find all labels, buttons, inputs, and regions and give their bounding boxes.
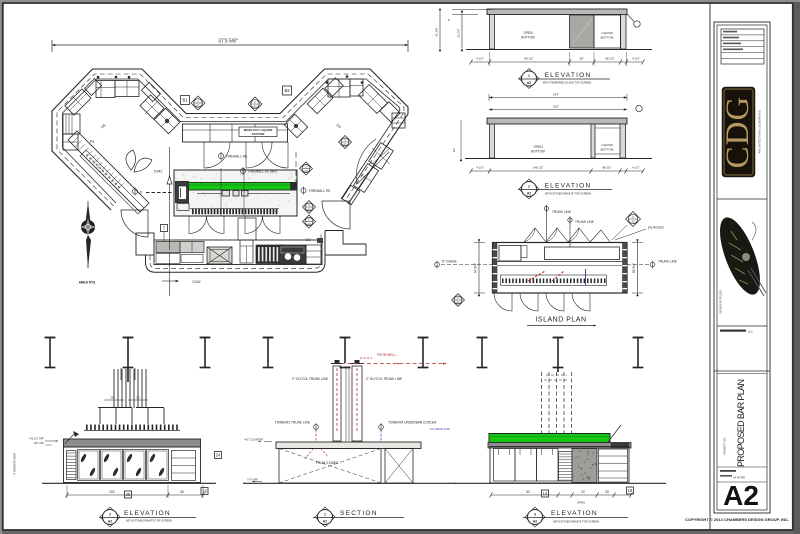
svg-text:2'042: 2'042 bbox=[154, 170, 163, 174]
svg-text:84 1/2": 84 1/2" bbox=[524, 57, 533, 61]
svg-text:PROPOSED BAR PLAN: PROPOSED BAR PLAN bbox=[736, 379, 746, 467]
svg-text:BOTTOM: BOTTOM bbox=[601, 147, 614, 151]
svg-text:TOWER#1 TRUNK LINE: TOWER#1 TRUNK LINE bbox=[275, 421, 310, 425]
svg-text:14: 14 bbox=[543, 491, 548, 496]
svg-text:FIREWALL RE.: FIREWALL RE. bbox=[226, 155, 248, 159]
svg-text:BOTTOM: BOTTOM bbox=[531, 149, 545, 153]
svg-text:3: 3 bbox=[534, 513, 536, 517]
svg-text:PS: PS bbox=[90, 140, 95, 144]
svg-text:ARCHITECTURE DESIGNERS: ARCHITECTURE DESIGNERS bbox=[758, 110, 762, 153]
svg-text:WITH STONE/GRANITE TOP SCREEN: WITH STONE/GRANITE TOP SCREEN bbox=[553, 520, 599, 524]
svg-text:A2: A2 bbox=[108, 520, 112, 524]
svg-text:4' GRANITE BAR: 4' GRANITE BAR bbox=[13, 453, 17, 475]
svg-text:36 1/2": 36 1/2" bbox=[457, 28, 461, 37]
svg-text:148 1/2": 148 1/2" bbox=[533, 166, 544, 170]
svg-text:TRUNK LINE: TRUNK LINE bbox=[552, 210, 571, 214]
svg-text:FROM WELL ...: FROM WELL ... bbox=[377, 353, 399, 357]
svg-text:88 1/2": 88 1/2" bbox=[605, 57, 614, 61]
svg-text:ELEVATION: ELEVATION bbox=[124, 510, 171, 517]
svg-text:1/2" DRAIN LINE: 1/2" DRAIN LINE bbox=[430, 427, 450, 431]
svg-text:A2: A2 bbox=[307, 222, 311, 226]
svg-text:BOTTOM: BOTTOM bbox=[521, 35, 535, 39]
svg-text:B1: B1 bbox=[182, 98, 188, 103]
svg-text:A2: A2 bbox=[343, 142, 347, 146]
svg-text:A2: A2 bbox=[631, 219, 635, 223]
svg-text:SECTION: SECTION bbox=[340, 510, 378, 517]
svg-text:FROM 3 SIDES: FROM 3 SIDES bbox=[316, 461, 339, 465]
svg-text:WITH STONE/GRANITE TOP SCREEN: WITH STONE/GRANITE TOP SCREEN bbox=[126, 519, 172, 523]
svg-text:PROJECT NO:: PROJECT NO: bbox=[723, 437, 727, 455]
svg-text:4 1/2": 4 1/2" bbox=[476, 57, 483, 61]
svg-text:A2: A2 bbox=[323, 520, 327, 524]
svg-text:STATION: STATION bbox=[252, 132, 265, 136]
svg-text:(4) HOLES: (4) HOLES bbox=[648, 226, 664, 230]
svg-text:A2: A2 bbox=[253, 104, 257, 108]
svg-text:25: 25 bbox=[126, 492, 131, 497]
svg-text:162": 162" bbox=[553, 105, 559, 109]
svg-text:24: 24 bbox=[216, 453, 221, 458]
svg-text:42": 42" bbox=[452, 148, 456, 152]
svg-text:41 3/8": 41 3/8" bbox=[435, 27, 439, 36]
svg-text:BOTTOM: BOTTOM bbox=[601, 35, 614, 39]
svg-text:2" GLYCOL TRUNK LINE: 2" GLYCOL TRUNK LINE bbox=[366, 377, 402, 381]
svg-text:A2: A2 bbox=[196, 103, 200, 107]
svg-text:2" GLYCOL TRUNK LINE: 2" GLYCOL TRUNK LINE bbox=[292, 377, 328, 381]
svg-text:TOWER#2 UNDERBAR COOLER: TOWER#2 UNDERBAR COOLER bbox=[388, 421, 437, 425]
svg-text:1: 1 bbox=[528, 74, 530, 78]
svg-text:ELEVATION: ELEVATION bbox=[551, 510, 598, 517]
svg-text:TRUNK LINE: TRUNK LINE bbox=[575, 220, 594, 224]
svg-text:LIQUOR: LIQUOR bbox=[601, 143, 613, 147]
svg-text:102: 102 bbox=[109, 490, 115, 494]
svg-text:2: 2 bbox=[109, 513, 111, 517]
svg-text:0'-0" AFF: 0'-0" AFF bbox=[247, 478, 258, 482]
svg-text:2: 2 bbox=[324, 513, 326, 517]
svg-text:4 1/2": 4 1/2" bbox=[632, 57, 639, 61]
svg-text:A2: A2 bbox=[456, 300, 460, 304]
svg-text:+36" AFF: +36" AFF bbox=[33, 441, 44, 445]
svg-text:A2: A2 bbox=[307, 207, 311, 211]
svg-text:6': 6' bbox=[140, 191, 143, 195]
svg-text:OPEN: OPEN bbox=[577, 501, 585, 505]
svg-text:1'042: 1'042 bbox=[192, 280, 201, 284]
svg-text:88 1/2": 88 1/2" bbox=[602, 166, 611, 170]
svg-text:19: 19 bbox=[202, 489, 207, 494]
svg-text:OPEN: OPEN bbox=[523, 31, 533, 35]
svg-text:A2: A2 bbox=[304, 169, 308, 173]
svg-text:WITH STONE/GRANITE TOP SCREEN: WITH STONE/GRANITE TOP SCREEN bbox=[545, 192, 591, 196]
svg-text:30: 30 bbox=[605, 490, 609, 494]
svg-text:ELEVATION: ELEVATION bbox=[545, 72, 592, 79]
svg-text:SIGNATURE STUDIO: SIGNATURE STUDIO bbox=[720, 290, 723, 314]
svg-text:ISLAND PLAN: ISLAND PLAN bbox=[535, 317, 586, 324]
svg-text:TRUNK LINE: TRUNK LINE bbox=[658, 260, 677, 264]
svg-text:A2: A2 bbox=[723, 480, 759, 511]
svg-text:32: 32 bbox=[526, 490, 530, 494]
svg-text:LIQUOR: LIQUOR bbox=[601, 31, 613, 35]
svg-text:4": 4" bbox=[448, 18, 451, 22]
svg-text:DS: DS bbox=[306, 238, 312, 242]
svg-text:1: 1 bbox=[528, 185, 530, 189]
svg-text:ELEVATION: ELEVATION bbox=[545, 183, 592, 190]
svg-text:30: 30 bbox=[180, 490, 184, 494]
svg-text:AREA NTS: AREA NTS bbox=[79, 281, 97, 285]
svg-text:+42 1/2" AFF: +42 1/2" AFF bbox=[29, 437, 45, 441]
svg-text:A2: A2 bbox=[533, 520, 537, 524]
svg-text:194": 194" bbox=[553, 93, 559, 97]
svg-text:A2: A2 bbox=[527, 192, 531, 196]
svg-text:20: 20 bbox=[136, 396, 140, 400]
svg-text:COPYRIGHT © 2014 CHAMBERS DES: COPYRIGHT © 2014 CHAMBERS DESIGN GROUP, … bbox=[685, 517, 789, 522]
svg-text:A2: A2 bbox=[527, 81, 531, 85]
svg-text:6" CHASE: 6" CHASE bbox=[442, 260, 457, 264]
svg-text:28": 28" bbox=[579, 57, 583, 61]
svg-text:FIREWALL RE (NR): FIREWALL RE (NR) bbox=[248, 170, 277, 174]
svg-text:CDG: CDG bbox=[720, 96, 756, 169]
svg-text:19: 19 bbox=[628, 488, 633, 493]
svg-text:FIREWALL RE.: FIREWALL RE. bbox=[309, 189, 331, 193]
svg-text:WITH TEMPERED GLASS TOP SCREEN: WITH TEMPERED GLASS TOP SCREEN bbox=[543, 81, 592, 85]
svg-text:OPEN: OPEN bbox=[533, 145, 543, 149]
svg-text:B2: B2 bbox=[284, 88, 290, 93]
svg-text:20: 20 bbox=[110, 396, 114, 400]
svg-text:37'3 5/8": 37'3 5/8" bbox=[218, 39, 238, 45]
svg-text:4 1/2": 4 1/2" bbox=[632, 166, 639, 170]
svg-text:4 1/2": 4 1/2" bbox=[476, 166, 483, 170]
svg-text:LLC: LLC bbox=[748, 330, 753, 334]
svg-text:22: 22 bbox=[581, 490, 585, 494]
